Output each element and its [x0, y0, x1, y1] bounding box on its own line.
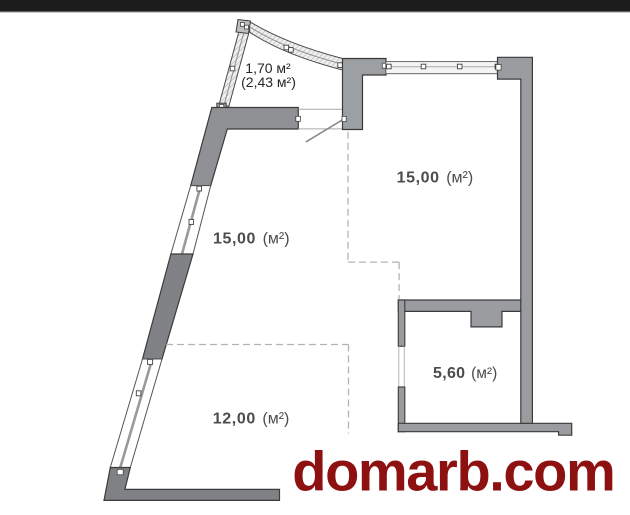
svg-text:(2,43 м²): (2,43 м²) [241, 74, 296, 90]
svg-text:12,00 (м²): 12,00 (м²) [213, 410, 290, 427]
svg-text:5,60 (м²): 5,60 (м²) [433, 365, 497, 382]
svg-text:15,00 (м²): 15,00 (м²) [213, 230, 290, 247]
svg-text:15,00 (м²): 15,00 (м²) [397, 169, 474, 186]
svg-text:domarb.com: domarb.com [292, 440, 614, 503]
